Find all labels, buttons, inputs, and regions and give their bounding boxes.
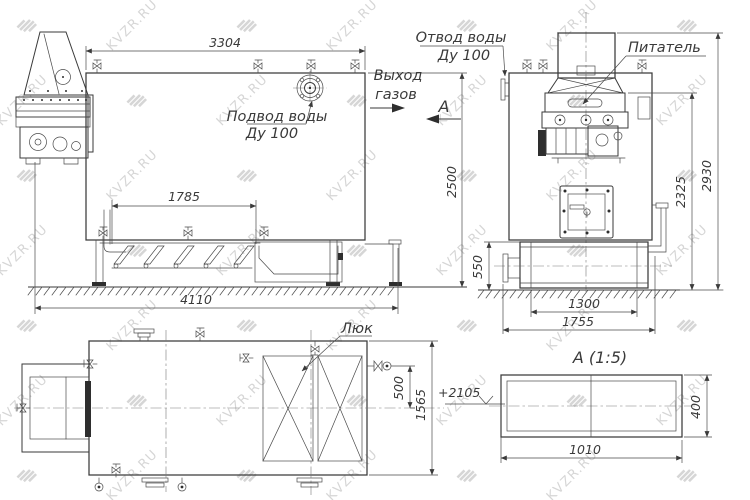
watermark-layer: KVZR.RUKVZR.RUKVZR.RUKVZR.RUKVZR.RUKVZR.… (0, 0, 711, 500)
watermark-text: KVZR.RU (654, 72, 711, 129)
watermark-text: KVZR.RU (214, 222, 271, 279)
watermark-logo-icon (677, 315, 698, 336)
watermark-text: KVZR.RU (324, 447, 381, 500)
label-water-outlet: Отвод воды Ду 100 (416, 30, 507, 76)
hatch-panels (263, 356, 362, 461)
watermark-text: KVZR.RU (214, 372, 271, 429)
dim-text: 1785 (168, 189, 200, 204)
svg-text:2325: 2325 (673, 176, 688, 208)
section-title: А (1:5) (572, 348, 627, 367)
svg-text:1565: 1565 (413, 389, 428, 421)
svg-text:Люк: Люк (340, 321, 373, 337)
left-pipe-flange (501, 79, 509, 100)
svg-text:500: 500 (391, 376, 406, 400)
svg-text:1755: 1755 (562, 314, 594, 329)
label-gas-exit: Выход газов (370, 68, 422, 113)
watermark-logo-icon (677, 465, 698, 486)
svg-text:газов: газов (375, 87, 417, 103)
flange-stub-bottom-2 (297, 478, 322, 487)
watermark-text: KVZR.RU (0, 372, 51, 429)
watermark-logo-icon (567, 240, 588, 261)
watermark-logo-icon (237, 15, 258, 36)
furnace-door (560, 186, 613, 238)
svg-text:А: А (438, 97, 450, 116)
drawing-canvas: KVZR.RUKVZR.RUKVZR.RUKVZR.RUKVZR.RUKVZR.… (0, 0, 750, 500)
svg-text:Отвод воды: Отвод воды (416, 30, 507, 46)
dimension-500: 500 (391, 366, 415, 408)
svg-text:2930: 2930 (699, 160, 714, 192)
flange-stub-bottom-1 (142, 478, 168, 487)
watermark-text: KVZR.RU (104, 447, 161, 500)
watermark-logo-icon (237, 465, 258, 486)
fuel-feeder-front (538, 12, 628, 292)
watermark-logo-icon (347, 240, 368, 261)
watermark-logo-icon (17, 165, 38, 186)
watermark-text: KVZR.RU (544, 0, 601, 54)
watermark-logo-icon (237, 315, 258, 336)
svg-text:Ду 100: Ду 100 (437, 48, 490, 64)
watermark-logo-icon (17, 15, 38, 36)
svg-text:Подвод воды: Подвод воды (227, 109, 328, 125)
watermark-text: KVZR.RU (104, 297, 161, 354)
watermark-text: KVZR.RU (0, 222, 51, 279)
boiler-body (86, 73, 365, 240)
svg-text:1300: 1300 (568, 296, 600, 311)
watermark-logo-icon (347, 90, 368, 111)
svg-text:1010: 1010 (569, 442, 601, 457)
dim-text: 3304 (209, 35, 241, 50)
watermark-logo-icon (457, 165, 478, 186)
side-bracket (638, 97, 650, 119)
side-valve-with-handwheel (367, 361, 391, 371)
watermark-text: KVZR.RU (324, 0, 381, 54)
watermark-logo-icon (567, 390, 588, 411)
watermark-text: KVZR.RU (104, 0, 161, 54)
svg-text:Выход: Выход (374, 68, 423, 84)
svg-text:Ду 100: Ду 100 (245, 126, 298, 142)
watermark-text: KVZR.RU (544, 147, 601, 204)
dim-text: 4110 (180, 292, 212, 307)
watermark-logo-icon (127, 240, 148, 261)
plan-view: 500 1565 +2105 Люк (14, 321, 505, 495)
rear-downpipe (365, 244, 399, 284)
watermark-logo-icon (17, 465, 38, 486)
dim-text: 2500 (444, 166, 459, 198)
watermark-text: KVZR.RU (324, 147, 381, 204)
watermark-text: KVZR.RU (654, 222, 711, 279)
watermark-logo-icon (457, 315, 478, 336)
svg-text:Питатель: Питатель (628, 40, 701, 56)
water-inlet-flange (293, 71, 327, 105)
watermark-logo-icon (457, 465, 478, 486)
watermark-logo-icon (127, 90, 148, 111)
watermark-logo-icon (237, 165, 258, 186)
watermark-text: KVZR.RU (104, 147, 161, 204)
technical-drawing-page: KVZR.RUKVZR.RUKVZR.RUKVZR.RUKVZR.RUKVZR.… (0, 0, 750, 500)
watermark-text: KVZR.RU (0, 72, 51, 129)
svg-text:550: 550 (470, 255, 485, 279)
svg-text:400: 400 (688, 395, 703, 419)
dimension-1010: 1010 (501, 380, 682, 463)
riser-pipe (648, 203, 668, 252)
svg-text:+2105: +2105 (438, 385, 480, 400)
watermark-logo-icon (17, 315, 38, 336)
